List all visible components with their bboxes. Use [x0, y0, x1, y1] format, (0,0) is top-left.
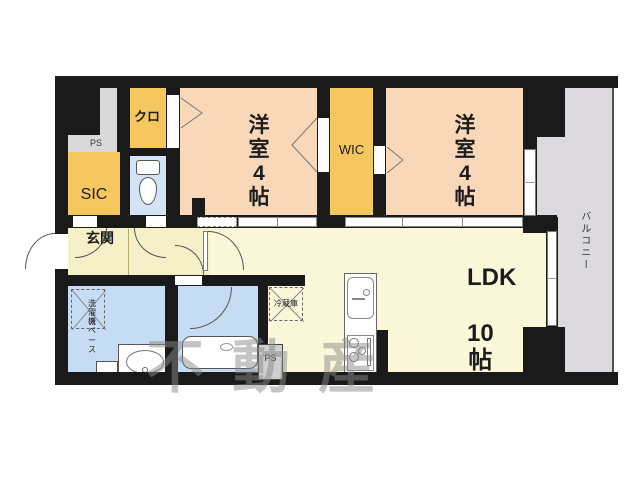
powder-room-door-opening	[175, 276, 202, 285]
room-name: 洋室	[455, 114, 476, 162]
bathtub-icon	[182, 336, 258, 369]
wic-left-door-opening	[318, 118, 329, 172]
ldk-label: LDK 10帖	[397, 262, 537, 322]
sic-door-opening	[73, 216, 97, 227]
entrance-step-line	[128, 229, 129, 275]
bedroom-right-label: 洋室 4帖	[386, 110, 523, 166]
window-mullion	[547, 278, 557, 279]
wall-segment	[377, 330, 388, 385]
bedroom-left-label: 洋室 4帖	[180, 110, 317, 166]
wic-right-door-opening	[374, 146, 385, 174]
kitchen-sink-drain-icon	[363, 289, 370, 296]
stove-grill-icon	[367, 338, 371, 366]
ps-top-label: PS	[76, 135, 116, 151]
wall-block-top-right	[523, 76, 565, 137]
sic-label: SIC	[68, 184, 120, 206]
wall-segment	[192, 198, 205, 215]
washer-space-label: 洗濯機 スペース	[69, 295, 107, 321]
ps-bottom-label: PS	[258, 350, 283, 366]
toilet-door-opening	[146, 216, 166, 227]
room-name: 洋室	[249, 114, 270, 162]
floorplan-canvas: PS PS 洋室 4帖 洋室 4帖 LDK 10帖 WIC SIC クロ 玄関 …	[0, 0, 640, 480]
sliding-door-tick	[402, 217, 403, 227]
sliding-door-tick	[462, 217, 463, 227]
closet-label: クロ	[128, 108, 166, 126]
bathtub-drain-icon	[220, 343, 233, 351]
window-mullion	[524, 182, 536, 183]
kitchen-faucet-icon	[352, 298, 365, 300]
closet-door-opening	[167, 95, 179, 148]
entrance-label: 玄関	[72, 229, 128, 247]
toilet-tank-icon	[136, 160, 160, 175]
wall-segment	[128, 148, 166, 156]
wic-label: WIC	[330, 140, 373, 160]
room-name: LDK	[467, 264, 516, 292]
stove-burner-2	[358, 347, 366, 355]
entrance-door-opening	[55, 234, 68, 269]
sliding-door-band	[197, 217, 237, 227]
sliding-door-tick	[277, 217, 278, 227]
stove-burner-1	[349, 338, 359, 348]
room-size: 4帖	[249, 162, 270, 210]
room-size: 4帖	[455, 162, 476, 210]
label-line: スペース	[88, 317, 96, 354]
balcony-label: バルコニー	[576, 200, 592, 282]
fridge-label: 冷蔵庫	[269, 297, 303, 311]
stove-burner-3	[349, 352, 359, 362]
sliding-door-band	[345, 217, 523, 227]
wall-block-bottom-right	[523, 327, 565, 385]
entrance-door-arc	[25, 233, 55, 269]
room-size: 10帖	[467, 320, 494, 375]
wall-segment	[165, 286, 178, 385]
